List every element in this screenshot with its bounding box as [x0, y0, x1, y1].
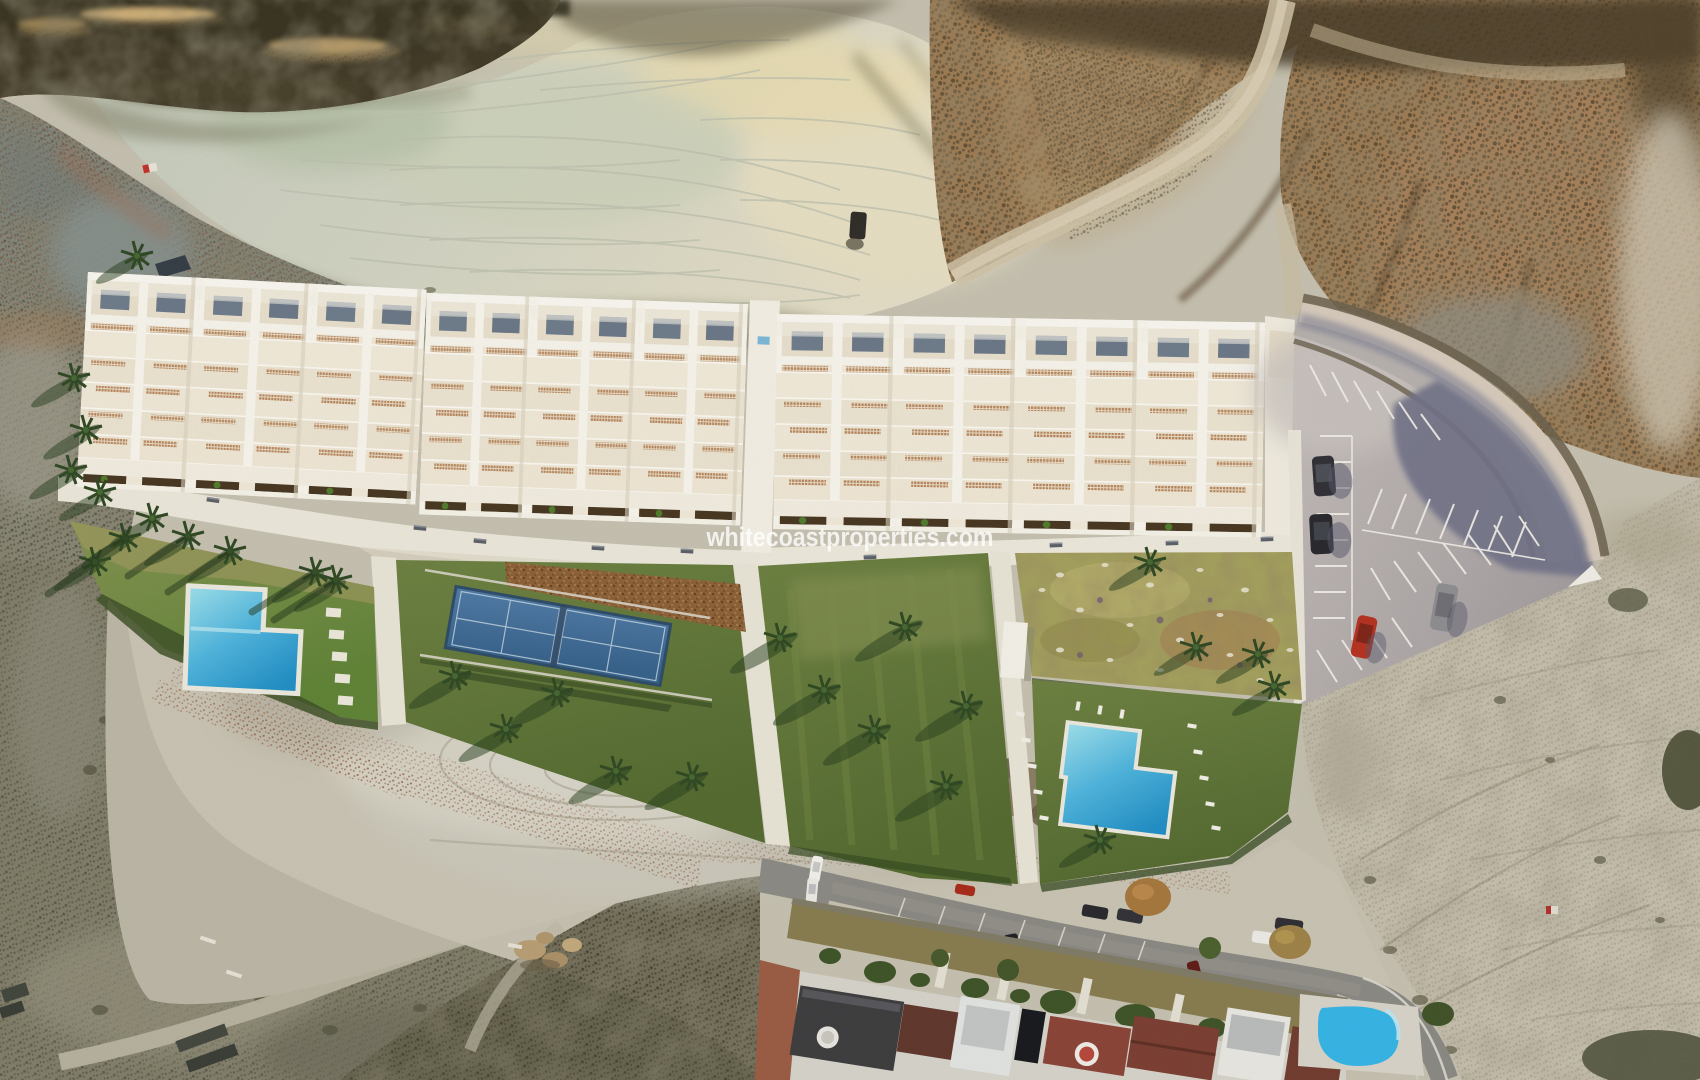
svg-text:whitecoastproperties.com: whitecoastproperties.com	[706, 522, 994, 552]
